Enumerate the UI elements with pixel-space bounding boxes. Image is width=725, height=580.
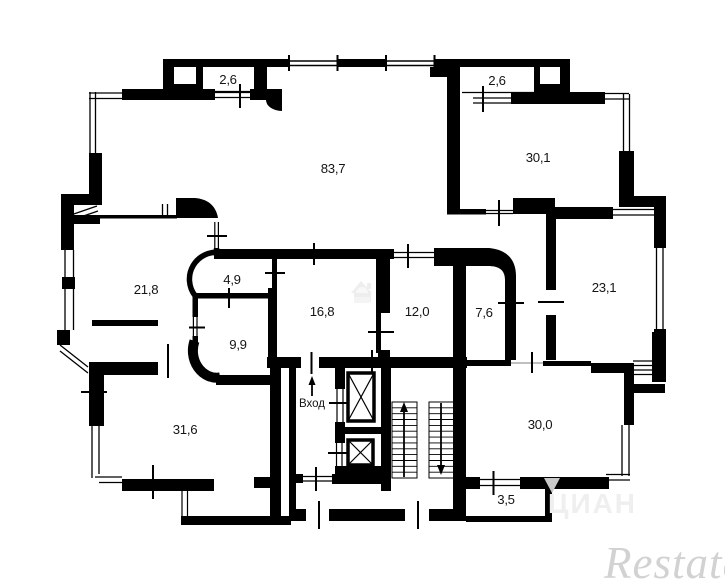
svg-text:21,8: 21,8 bbox=[134, 282, 158, 297]
svg-text:Restate: Restate bbox=[603, 538, 725, 580]
svg-text:31,6: 31,6 bbox=[173, 422, 197, 437]
svg-text:3,5: 3,5 bbox=[497, 492, 514, 507]
svg-text:83,7: 83,7 bbox=[321, 161, 345, 176]
svg-text:12,0: 12,0 bbox=[405, 304, 429, 319]
svg-text:30,0: 30,0 bbox=[528, 417, 552, 432]
svg-text:Вход: Вход bbox=[299, 398, 325, 410]
svg-text:2,6: 2,6 bbox=[219, 72, 236, 87]
svg-text:23,1: 23,1 bbox=[592, 280, 616, 295]
svg-text:2,6: 2,6 bbox=[488, 73, 505, 88]
svg-text:7,6: 7,6 bbox=[475, 305, 492, 320]
svg-text:16,8: 16,8 bbox=[310, 304, 334, 319]
svg-text:9,9: 9,9 bbox=[229, 337, 246, 352]
svg-text:ЦИАН: ЦИАН bbox=[548, 488, 637, 519]
svg-text:30,1: 30,1 bbox=[526, 150, 550, 165]
svg-text:4,9: 4,9 bbox=[223, 272, 240, 287]
